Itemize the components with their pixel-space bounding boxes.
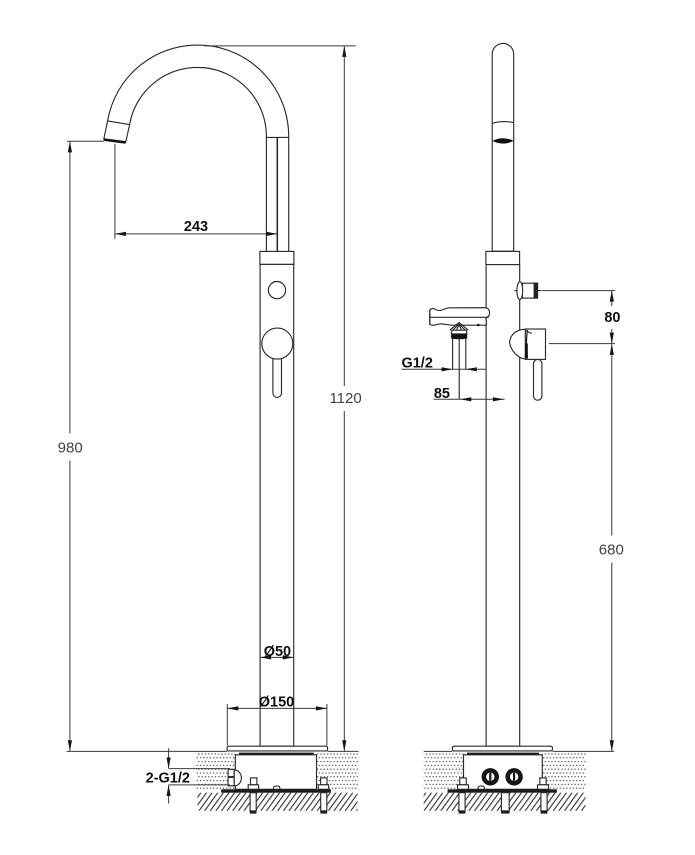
svg-text:980: 980 [58, 440, 83, 457]
svg-text:1120: 1120 [329, 390, 361, 407]
svg-text:80: 80 [604, 310, 620, 326]
svg-text:680: 680 [599, 541, 624, 558]
svg-text:Ø50: Ø50 [264, 644, 291, 660]
svg-text:85: 85 [434, 386, 450, 402]
svg-text:2-G1/2: 2-G1/2 [146, 770, 190, 786]
svg-text:G1/2: G1/2 [401, 356, 432, 372]
svg-text:243: 243 [184, 219, 208, 235]
svg-text:Ø150: Ø150 [259, 695, 294, 711]
